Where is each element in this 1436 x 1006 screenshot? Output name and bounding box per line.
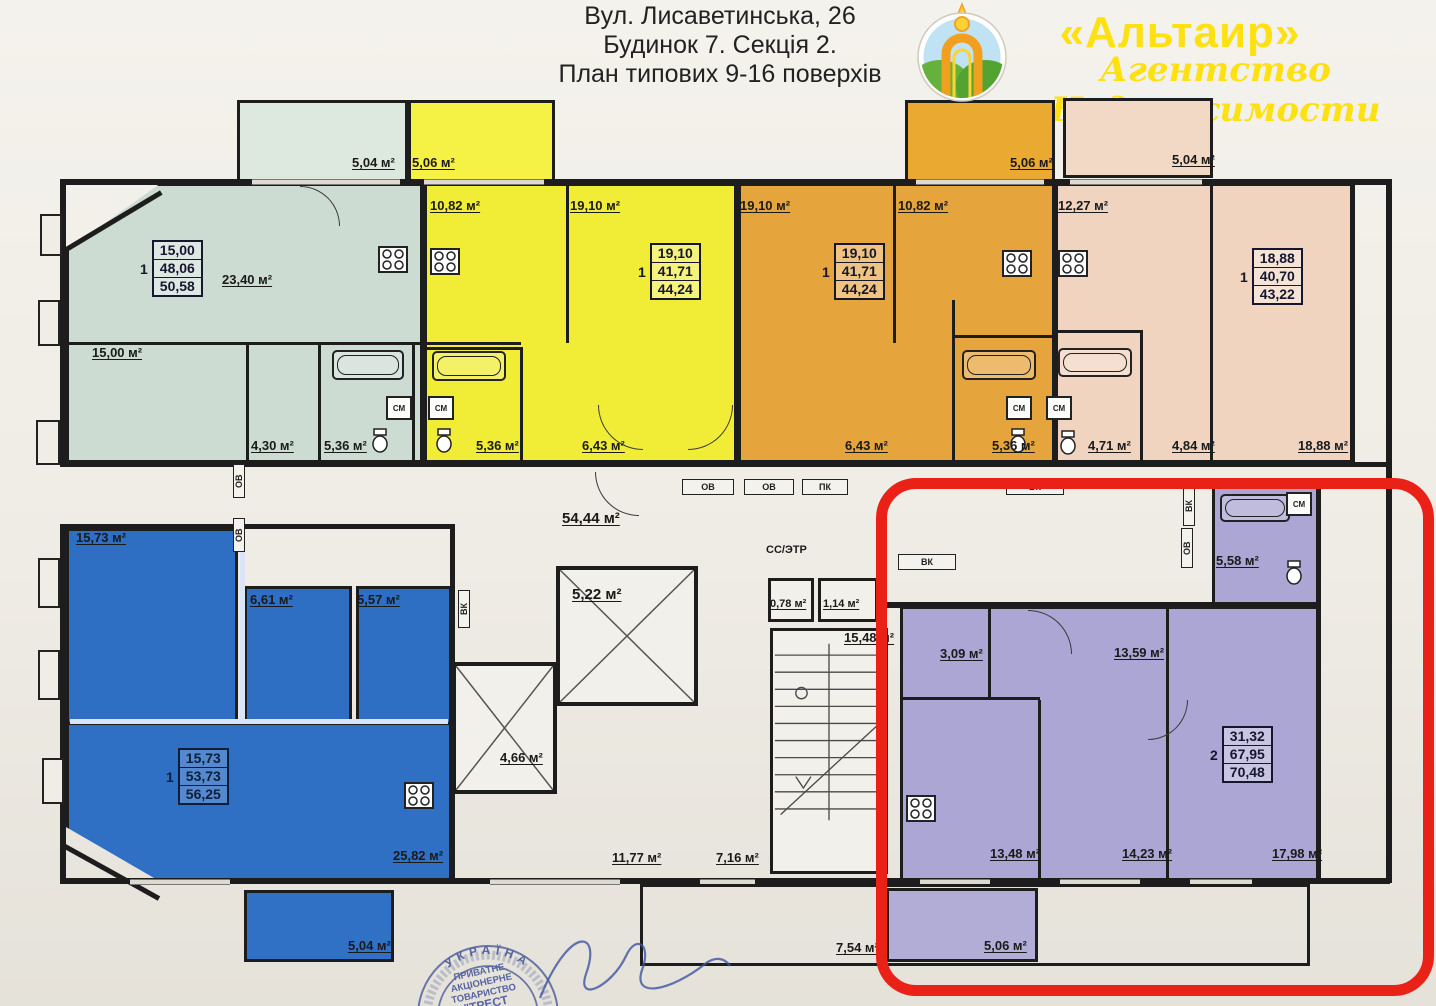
ov-label: ОВ (682, 479, 734, 495)
rooms-count: 1 (638, 264, 646, 280)
stove-icon (378, 246, 408, 273)
area-label: 0,78 м² (770, 598, 806, 610)
signature (530, 916, 740, 1006)
stove-icon (1058, 250, 1088, 277)
area-label: 12,27 м² (1058, 198, 1108, 213)
ov-label: ОВ (233, 464, 245, 498)
toilet-icon (1058, 430, 1078, 456)
washer-icon: СМ (386, 396, 412, 420)
plan-header: Вул. Лисаветинська, 26 Будинок 7. Секція… (520, 2, 920, 89)
vk-label: ВК (1183, 486, 1195, 526)
area-label: 13,59 м² (1114, 645, 1164, 660)
area-label: 19,10 м² (740, 198, 790, 213)
apartment-spec-mint: 1 15,0048,0650,58 (140, 240, 203, 297)
address-line: Вул. Лисаветинська, 26 (520, 2, 920, 31)
ov-label: ОВ (744, 479, 794, 495)
apartment-spec-yellow: 1 19,1041,7144,24 (638, 243, 701, 300)
vk-label: ВК (898, 554, 956, 570)
vk-label: ВК (458, 590, 470, 628)
staircase (770, 628, 888, 874)
apartment-spec-purple: 2 31,3267,9570,48 (1210, 726, 1273, 783)
toilet-icon (1284, 560, 1304, 586)
rear-balcony (640, 884, 1310, 966)
area-label: 7,16 м² (716, 850, 759, 865)
area-label: 5,06 м² (1010, 155, 1053, 170)
area-label: 54,44 м² (562, 510, 620, 527)
area-label: 5,57 м² (357, 592, 400, 607)
apartment-orange (737, 183, 1055, 463)
apartment-spec-orange: 1 19,1041,7144,24 (822, 243, 885, 300)
washer-icon: СМ (1006, 396, 1032, 420)
area-label: 5,06 м² (984, 938, 1027, 953)
area-label: 13,48 м² (990, 846, 1040, 861)
floors-line: План типових 9-16 поверхів (520, 60, 920, 89)
washer-icon: СМ (1286, 492, 1312, 516)
agency-logo-icon (912, 2, 1012, 102)
area-label: 5,58 м² (1216, 553, 1259, 568)
area-label: 6,43 м² (582, 438, 625, 453)
agency-tagline: Агентство Недвижимости (995, 50, 1436, 130)
apartment-blue-room1 (66, 528, 238, 725)
area-label: 5,04 м² (348, 938, 391, 953)
area-label: 6,61 м² (250, 592, 293, 607)
area-label: 10,82 м² (898, 198, 948, 213)
area-label: 10,82 м² (430, 198, 480, 213)
elevator-shaft-small (452, 662, 557, 794)
apartment-spec-blue: 1 15,7353,7356,25 (166, 748, 229, 805)
apartment-spec-peach: 1 18,8840,7043,22 (1240, 248, 1303, 305)
rooms-count: 1 (166, 769, 174, 785)
area-label: 5,04 м² (1172, 152, 1215, 167)
toilet-icon (370, 428, 390, 454)
washer-icon: СМ (1046, 396, 1072, 420)
area-label: 19,10 м² (570, 198, 620, 213)
area-label: 23,40 м² (222, 272, 272, 287)
area-label: 5,04 м² (352, 155, 395, 170)
ov-label: ОВ (1181, 528, 1193, 568)
ov-label: ОВ (233, 518, 245, 552)
apartment-yellow-balcony (408, 100, 555, 183)
rooms-count: 1 (140, 261, 148, 277)
apartment-orange-balcony (905, 100, 1055, 183)
area-label: 5,36 м² (992, 438, 1035, 453)
area-label: 4,84 м² (1172, 438, 1215, 453)
floor-plan-page: Вул. Лисаветинська, 26 Будинок 7. Секція… (0, 0, 1436, 1006)
building-line: Будинок 7. Секція 2. (520, 31, 920, 60)
toilet-icon (434, 428, 454, 454)
area-label: 6,43 м² (845, 438, 888, 453)
washer-icon: СМ (428, 396, 454, 420)
stove-icon (906, 795, 936, 822)
rooms-count: 1 (822, 264, 830, 280)
area-label: 15,00 м² (92, 345, 142, 360)
area-label: 5,36 м² (324, 438, 367, 453)
area-label: 14,23 м² (1122, 846, 1172, 861)
rooms-count: 1 (1240, 269, 1248, 285)
area-label: 15,73 м² (76, 530, 126, 545)
area-label: 18,88 м² (1298, 438, 1348, 453)
stove-icon (430, 248, 460, 275)
riser-label: СС/ЭТР (766, 544, 807, 556)
area-label: 5,06 м² (412, 155, 455, 170)
area-label: 3,09 м² (940, 646, 983, 661)
stove-icon (1002, 250, 1032, 277)
stove-icon (404, 782, 434, 809)
area-label: 7,54 м² (836, 940, 879, 955)
area-label: 5,22 м² (572, 586, 621, 603)
area-label: 17,98 м² (1272, 846, 1322, 861)
vk-label: ВК (1006, 479, 1064, 495)
pk-label: ПК (802, 479, 848, 495)
area-label: 4,66 м² (500, 750, 543, 765)
area-label: 25,82 м² (393, 848, 443, 863)
apartment-mint-balcony (237, 100, 408, 183)
area-label: 4,71 м² (1088, 438, 1131, 453)
apartment-peach (1055, 183, 1355, 463)
area-label: 5,36 м² (476, 438, 519, 453)
area-label: 15,48 м² (844, 630, 894, 645)
area-label: 4,30 м² (251, 438, 294, 453)
area-label: 11,77 м² (612, 850, 661, 865)
area-label: 1,14 м² (823, 598, 859, 610)
rooms-count: 2 (1210, 747, 1218, 763)
